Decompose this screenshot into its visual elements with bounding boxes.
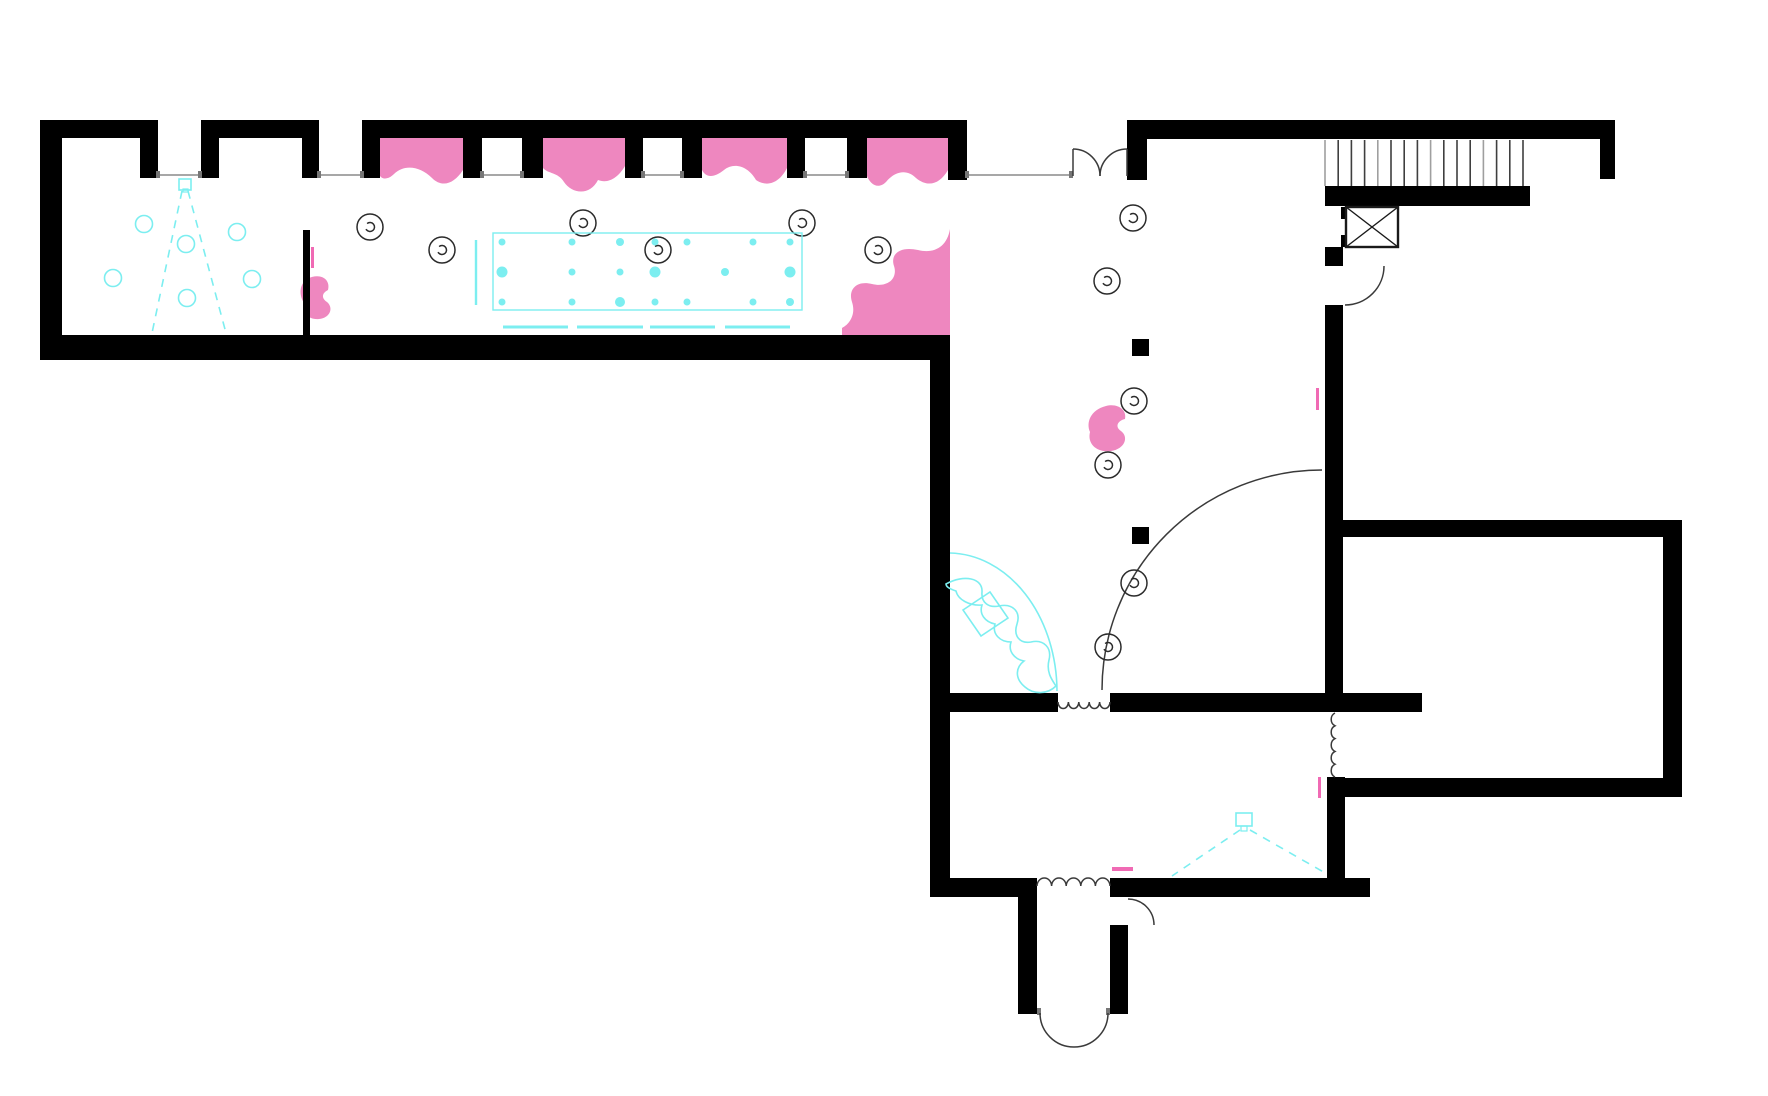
ceiling-light-inner-icon	[436, 244, 449, 257]
window-bay-curtain	[867, 138, 948, 186]
table-dot	[786, 298, 794, 306]
stool-icon	[244, 271, 261, 288]
wall-segment	[1018, 897, 1037, 1014]
ceiling-light-icon	[357, 214, 383, 240]
wall-segment	[362, 120, 967, 138]
ceiling-light-icon	[1120, 205, 1146, 231]
wall-segment	[140, 138, 158, 178]
door-swing-arc	[1100, 149, 1127, 176]
table-dot	[785, 267, 796, 278]
table-dot	[750, 239, 757, 246]
wall-segment	[1110, 925, 1128, 1014]
wall-segment	[1127, 120, 1615, 139]
projection-beam	[1250, 830, 1327, 874]
ceiling-light-icon	[865, 237, 891, 263]
pink-marker	[1112, 867, 1133, 871]
door-swing-arc	[1102, 470, 1322, 690]
window-jamb	[360, 171, 364, 178]
desk-chair	[963, 592, 1008, 636]
window-jamb	[198, 171, 202, 178]
stairs-group	[1325, 140, 1523, 186]
table-dot	[497, 267, 508, 278]
window-jamb	[641, 171, 645, 178]
wall-segment	[948, 138, 967, 180]
walls-group	[40, 120, 1682, 1014]
wall-segment	[625, 138, 643, 178]
projection-beam	[1172, 830, 1240, 876]
ceiling-light-inner-icon	[364, 221, 377, 234]
ceiling-light-inner-icon	[1101, 275, 1114, 288]
wall-segment	[787, 138, 805, 178]
exhibit-table	[493, 233, 802, 310]
wall-segment	[847, 138, 867, 178]
opening-squiggle	[1331, 713, 1335, 777]
ceiling-light-icon	[429, 237, 455, 263]
ceiling-light-inner-icon	[1128, 395, 1141, 408]
ceiling-light-icon	[1121, 388, 1147, 414]
door-swing-arc	[1345, 266, 1384, 305]
table-dot	[617, 269, 624, 276]
projection-beam	[188, 191, 226, 333]
stool-icon	[179, 290, 196, 307]
ceiling-light-inner-icon	[1102, 459, 1115, 472]
table-dot	[650, 267, 661, 278]
wall-segment	[1327, 777, 1345, 890]
ceiling-light-inner-icon	[872, 244, 885, 257]
ceiling-light-icon	[1121, 570, 1147, 596]
wall-segment	[1110, 693, 1422, 712]
window-bay-curtain	[543, 138, 625, 192]
window-jamb	[156, 171, 160, 178]
reception-desk	[946, 578, 1056, 692]
wall-segment	[1325, 186, 1530, 206]
wall-segment	[930, 878, 1037, 897]
wall-segment	[1325, 247, 1343, 266]
wall-segment	[522, 138, 543, 178]
floor-plan-canvas	[0, 0, 1768, 1096]
wall-segment	[1600, 139, 1615, 179]
floor-plan-page	[0, 0, 1768, 1096]
window-jamb	[317, 171, 321, 178]
ceiling-light-icon	[1094, 268, 1120, 294]
table-dot	[652, 299, 659, 306]
wall-segment	[930, 335, 950, 897]
projector-icon	[1236, 813, 1252, 826]
table-dot	[652, 239, 659, 246]
door-swing-arc	[1074, 1013, 1108, 1047]
wall-segment	[302, 138, 319, 178]
table-dot	[616, 238, 624, 246]
projection-beam	[152, 191, 182, 333]
stool-icon	[136, 216, 153, 233]
projectors-group	[152, 179, 1327, 876]
ceiling-light-inner-icon	[652, 244, 665, 257]
wall-segment	[682, 138, 702, 178]
ceiling-light-inner-icon	[577, 217, 590, 230]
table-dot	[499, 239, 506, 246]
wall-segment	[201, 120, 319, 138]
table-dot	[615, 297, 625, 307]
ceiling-light-icon	[570, 210, 596, 236]
pink-marker	[311, 247, 314, 268]
window-bay-curtain	[380, 138, 463, 184]
wall-segment	[303, 230, 310, 335]
opening-squiggle	[1058, 702, 1110, 709]
window-jamb	[965, 171, 969, 178]
pink-marker	[1318, 777, 1321, 798]
wall-segment	[463, 138, 482, 178]
pink-marker	[1316, 388, 1319, 410]
table-dot	[569, 269, 576, 276]
wall-segment	[40, 335, 950, 360]
table-dot	[750, 299, 757, 306]
ceiling-light-inner-icon	[1102, 641, 1115, 654]
window-jamb	[803, 171, 807, 178]
wall-segment	[1330, 778, 1682, 797]
wall-segment	[362, 138, 380, 178]
table-dot	[787, 239, 794, 246]
highlight-blob	[842, 229, 950, 335]
wall-segment	[945, 693, 1058, 712]
window-bay-curtain	[702, 138, 787, 184]
wall-segment	[40, 120, 62, 360]
window-jamb	[845, 171, 849, 178]
door-swing-arc	[1040, 1013, 1074, 1047]
table-dot	[721, 268, 729, 276]
wall-segment	[201, 138, 219, 178]
ceiling-light-icon	[1095, 452, 1121, 478]
table-dot	[499, 299, 506, 306]
door-swing-arc	[1128, 899, 1154, 925]
window-jamb	[480, 171, 484, 178]
wall-segment	[1325, 305, 1343, 693]
table-dot	[684, 239, 691, 246]
opening-squiggle	[1037, 878, 1110, 886]
table-dot	[569, 239, 576, 246]
wall-segment	[1110, 878, 1370, 897]
wall-segment	[1132, 339, 1149, 356]
wall-segment	[1132, 527, 1149, 544]
elevator	[1346, 207, 1398, 247]
highlight-blob	[1089, 405, 1126, 451]
wall-segment	[1127, 139, 1147, 180]
wall-segment	[1342, 520, 1682, 537]
stool-icon	[229, 224, 246, 241]
stool-icon	[178, 236, 195, 253]
window-jamb	[680, 171, 684, 178]
wall-segment	[40, 120, 158, 138]
ceiling-light-inner-icon	[796, 217, 809, 230]
table-dot	[684, 299, 691, 306]
stool-icon	[105, 270, 122, 287]
reception-glass-arc	[950, 553, 1057, 691]
door-swing-arc	[1073, 149, 1100, 176]
window-jamb	[520, 171, 524, 178]
projector-icon	[179, 179, 191, 190]
wall-segment	[1663, 520, 1682, 797]
table-dot	[569, 299, 576, 306]
ceiling-light-icon	[789, 210, 815, 236]
ceiling-light-inner-icon	[1127, 212, 1140, 225]
